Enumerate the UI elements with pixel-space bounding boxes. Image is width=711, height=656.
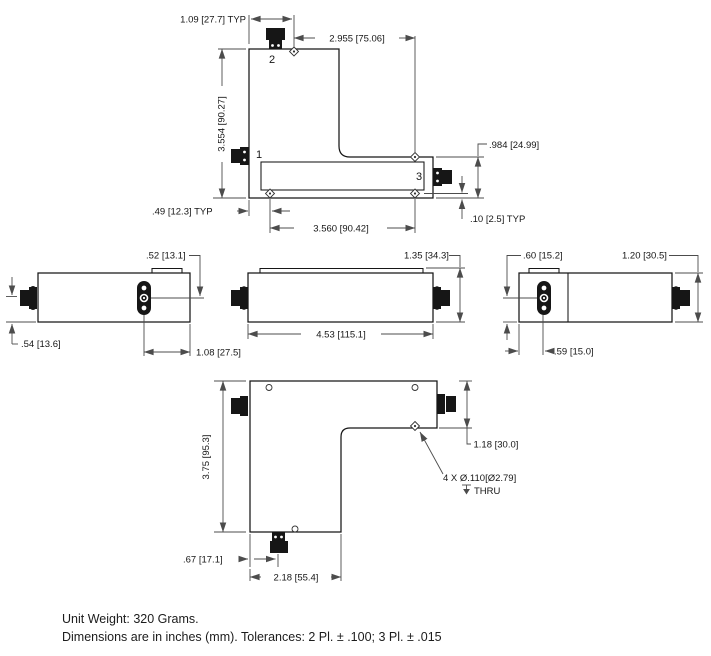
dim-hole-edge-typ: .49 [12.3] TYP: [152, 207, 213, 218]
front-side-body-outline: [248, 273, 433, 322]
bottom-view-dimensions: [214, 381, 472, 581]
dim-connector-center: .60 [15.2]: [523, 251, 563, 262]
dim-connector-offset-bottom: .67 [17.1]: [183, 555, 223, 566]
top-view: 1.09 [27.7] TYP 2.955 [75.06] 3.554 [90.…: [152, 15, 539, 235]
right-side-view: .60 [15.2] 1.20 [30.5] .59 [15.0]: [503, 251, 703, 358]
dim-port-spacing-typ: 1.09 [27.7] TYP: [180, 15, 246, 26]
dim-hole-offset-typ: .10 [2.5] TYP: [470, 214, 525, 225]
left-side-view: .52 [13.1] .54 [13.6] 1.08 [27.5]: [6, 251, 241, 359]
front-side-view: 1.35 [34.3] 4.53 [115.1]: [231, 251, 465, 341]
hole-callout: 4 X Ø.110[Ø2.79]: [443, 473, 516, 484]
bottom-view-connector-right: [437, 394, 456, 414]
dim-top-width: 2.955 [75.06]: [329, 34, 384, 45]
note-unit-weight: Unit Weight: 320 Grams.: [62, 612, 199, 626]
dim-overall-height: 3.554 [90.27]: [217, 96, 228, 151]
left-side-lid: [152, 269, 182, 274]
front-side-connector-right: [433, 286, 450, 310]
bottom-view: 3.75 [95.3] 1.18 [30.0] 4 X Ø.110[Ø2.79]…: [183, 381, 518, 584]
bottom-view-connector-bottom: [270, 532, 288, 553]
left-side-body-outline: [38, 273, 190, 322]
top-view-dimensions: [213, 15, 487, 233]
left-side-connector-endon: [137, 281, 151, 315]
port2-connector: [266, 28, 285, 49]
port2-label: 2: [269, 54, 275, 66]
port3-connector: [433, 168, 452, 186]
left-side-connector-side: [20, 286, 37, 310]
top-view-label-plate: [261, 162, 424, 190]
right-side-lid: [529, 269, 559, 274]
dim-body-height: 1.20 [30.5]: [622, 251, 667, 262]
hole-thru-note: THRU: [474, 486, 501, 497]
dim-overall-height-bottom: 3.75 [95.3]: [201, 435, 212, 480]
port3-label: 3: [416, 171, 422, 183]
dim-lid-offset: .52 [13.1]: [146, 251, 186, 262]
front-side-lid: [260, 269, 423, 274]
bottom-view-body-outline: [250, 381, 437, 532]
dim-bar-height: .984 [24.99]: [489, 140, 539, 151]
dim-bar-height-bottom: 1.18 [30.0]: [474, 440, 519, 451]
dim-limb-width: 2.18 [55.4]: [274, 573, 319, 584]
right-side-connector-right: [672, 286, 690, 310]
top-view-body-outline: [249, 49, 433, 198]
right-side-connector-endon: [537, 281, 551, 315]
dim-overall-height-front: 1.35 [34.3]: [404, 251, 449, 262]
front-side-connector-left: [231, 286, 248, 310]
dim-connector-offset-right: .59 [15.0]: [554, 347, 594, 358]
notes-block: Unit Weight: 320 Grams. Dimensions are i…: [62, 612, 442, 644]
port1-connector: [231, 147, 249, 165]
dim-overall-length: 4.53 [115.1]: [316, 330, 365, 341]
bottom-view-connector-left: [231, 396, 248, 416]
technical-drawing-canvas: 1.09 [27.7] TYP 2.955 [75.06] 3.554 [90.…: [0, 0, 711, 656]
dim-connector-offset: 1.08 [27.5]: [196, 348, 241, 359]
top-view-mounting-holes: [266, 47, 420, 198]
dim-hole-spacing: 3.560 [90.42]: [313, 224, 368, 235]
dim-connector-height: .54 [13.6]: [21, 339, 61, 350]
port1-label: 1: [256, 149, 262, 161]
note-tolerances: Dimensions are in inches (mm). Tolerance…: [62, 630, 442, 644]
bottom-view-mounting-holes: [266, 385, 420, 533]
